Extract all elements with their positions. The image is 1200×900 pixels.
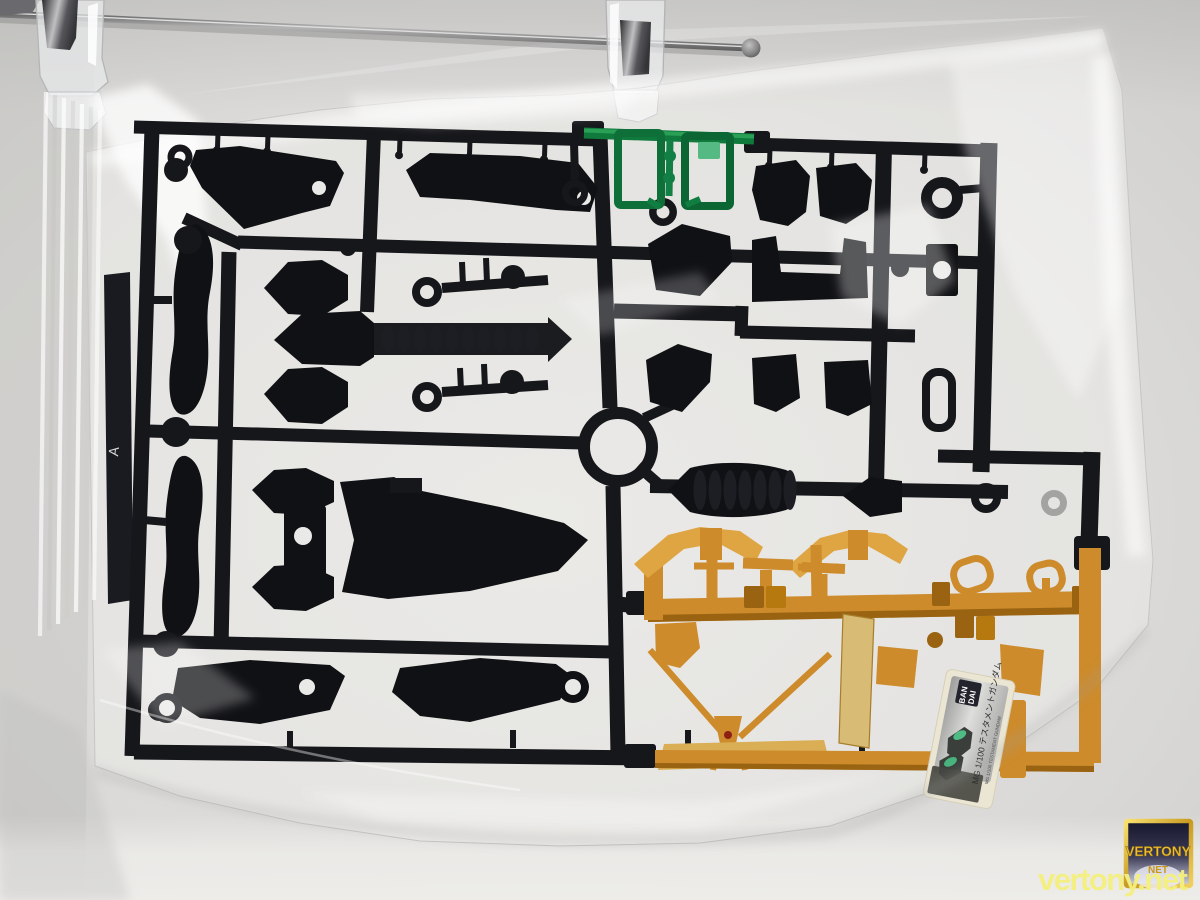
svg-text:vertony.net: vertony.net bbox=[1038, 862, 1187, 897]
svg-text:VERTONY: VERTONY bbox=[1125, 844, 1190, 859]
